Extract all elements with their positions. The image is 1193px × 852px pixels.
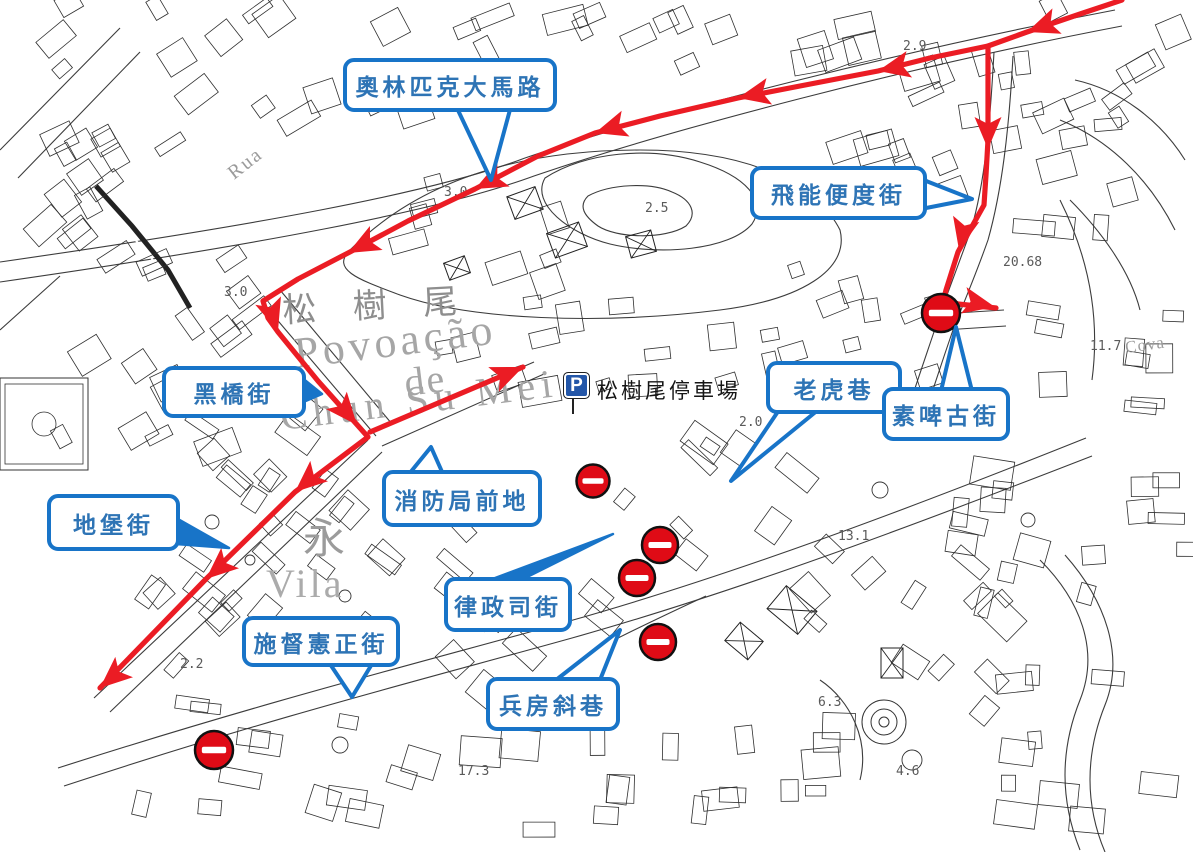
callout-pointer-subigu-street (941, 327, 972, 391)
callout-olympic-avenue: 奧林匹克大馬路 (343, 58, 557, 112)
callout-pointer-bingfang-xiexiang (556, 630, 620, 680)
elevation-mark: 4.6 (896, 764, 919, 779)
callout-pointer-dibao-street (176, 518, 229, 548)
elevation-mark: 6.3 (818, 695, 841, 710)
callout-shiduxian-zhengjie: 施督憲正街 (242, 616, 400, 667)
callout-lvzhengsi-street: 律政司街 (444, 577, 572, 632)
callout-dibao-street: 地堡街 (47, 494, 180, 551)
parking-sign-post (572, 399, 574, 414)
diversion-route (91, 0, 1122, 698)
no-entry-sign-icon (640, 624, 676, 660)
no-entry-sign-icon (195, 731, 233, 769)
no-entry-sign-icon (577, 465, 610, 498)
callout-pointer-lvzhengsi-street (487, 534, 613, 581)
callout-feineng-biandu-street: 飛能便度街 (750, 166, 927, 220)
elevation-mark: 2.5 (645, 201, 668, 216)
parking-sign: P (563, 372, 591, 416)
map-ghost-label: Rua (224, 143, 268, 184)
route-arrow (591, 111, 629, 146)
elevation-mark: 3.0 (224, 285, 247, 300)
map-ghost-label: 永 (303, 517, 345, 563)
callout-pointer-feineng-biandu-street (921, 179, 972, 209)
map-ghost-label: Vila (266, 561, 344, 606)
elevation-mark: 2.9 (903, 39, 926, 54)
callout-pointer-olympic-avenue (456, 106, 511, 180)
elevation-mark: 11.7 (1090, 339, 1121, 354)
map-ghost-label: Cova (1124, 333, 1166, 357)
no-entry-sign-icon (619, 560, 655, 596)
callout-xiaofangju-qiandi: 消防局前地 (382, 470, 542, 527)
no-entry-sign-icon (642, 527, 678, 563)
elevation-mark: 2.2 (180, 657, 203, 672)
callout-bingfang-xiexiang: 兵房斜巷 (486, 677, 620, 731)
elevation-mark: 2.0 (739, 415, 762, 430)
parking-label: 松樹尾停車場 (597, 375, 741, 405)
callout-subigu-street: 素啤古街 (882, 387, 1010, 441)
elevation-mark: 20.68 (1003, 255, 1042, 270)
callout-pointer-shiduxian-zhengjie (330, 664, 372, 697)
parking-lot-marker: P 松樹尾停車場 (563, 372, 741, 416)
parking-icon: P (563, 372, 590, 399)
route-arrow (342, 226, 383, 265)
diversion-map: 松 樹 尾PovoaçãodeChun Su Mei永VilaRuaCova2.… (0, 0, 1193, 852)
elevation-mark: 17.3 (458, 764, 489, 779)
elevation-mark: 13.1 (838, 529, 869, 544)
callout-heiqiao-street: 黑橋街 (162, 366, 306, 418)
